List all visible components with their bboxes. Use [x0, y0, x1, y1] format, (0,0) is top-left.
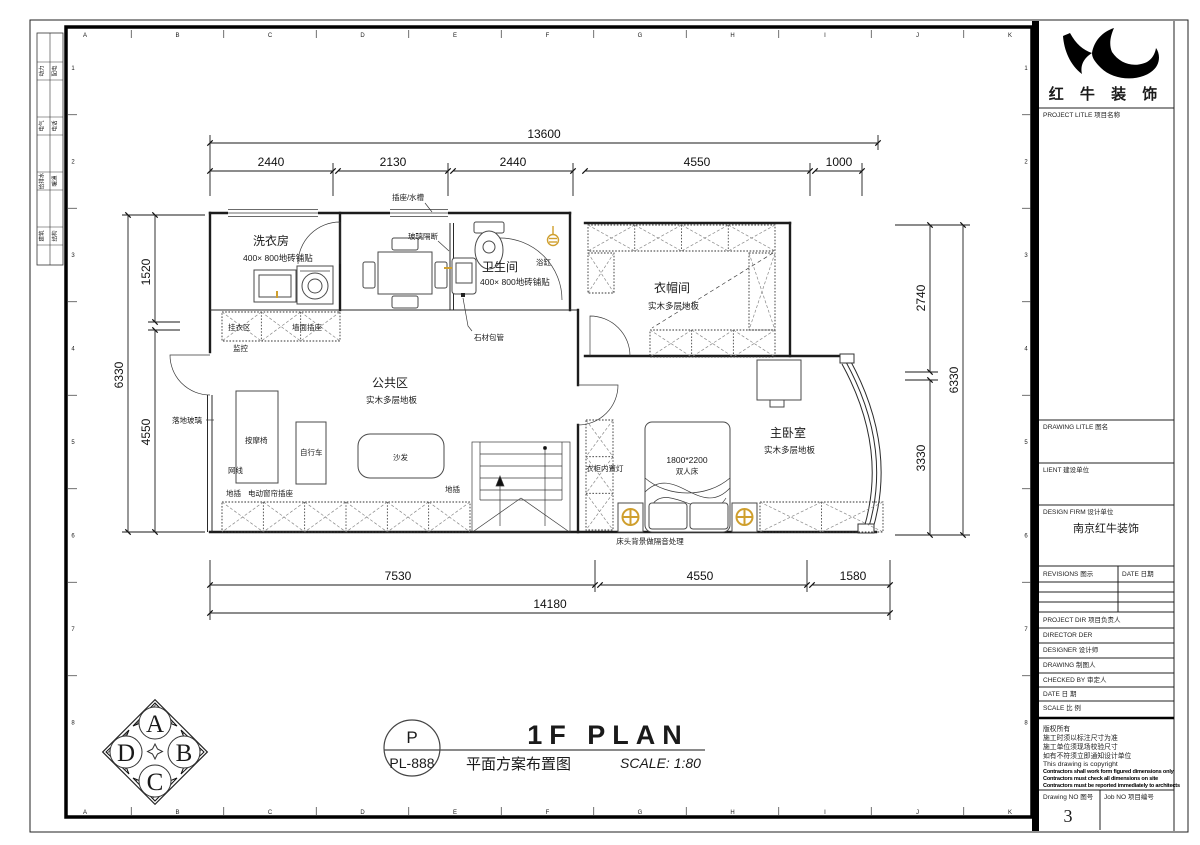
grid-number-left: 6: [71, 534, 75, 540]
grid-letter-bottom: G: [638, 810, 643, 816]
title-strip: P PL-888 1F PLAN 平面方案布置图 SCALE: 1:80: [384, 720, 705, 776]
grid-number-right: 7: [1024, 627, 1028, 633]
director-label: DIRECTOR DER: [1043, 632, 1093, 639]
curtain-socket-label: 电动窗帘插座: [248, 488, 293, 498]
drawing-label: DRAWING LITLE 图名: [1043, 422, 1108, 431]
grid-letter-bottom: F: [546, 810, 550, 816]
grid-letter-top: H: [730, 33, 734, 39]
bed-type-label: 双人床: [676, 466, 699, 476]
window-top-kitchen: [390, 209, 448, 217]
compass: A B C D: [103, 700, 208, 805]
scale-label: SCALE 比 例: [1043, 703, 1081, 712]
grid-number-right: 5: [1024, 440, 1028, 446]
company-name: 红 牛 装 饰: [1049, 85, 1164, 103]
wall-socket-label: 墙面插座: [292, 322, 322, 332]
dim-top-5: 1000: [826, 155, 853, 169]
dim-right-1: 2740: [914, 284, 928, 311]
floor-glass-label: 落地玻璃: [172, 415, 202, 425]
strip-label: 配电: [51, 65, 59, 77]
chair: [435, 262, 447, 288]
plan-title-en: 1F PLAN: [527, 720, 689, 750]
grid-number-left: 3: [71, 253, 75, 259]
grid-letter-top: F: [546, 33, 550, 39]
titleblock-separator-bar: [1032, 21, 1039, 831]
grid-letter-bottom: D: [360, 810, 365, 816]
grid-letter-bottom: I: [824, 810, 826, 816]
bed-size-label: 1800*2200: [666, 455, 707, 465]
dim-left-total: 6330: [112, 361, 126, 388]
grid-letter-top: A: [83, 33, 87, 39]
chair: [363, 262, 375, 288]
firm-label: DESIGN FIRM 设计单位: [1043, 507, 1114, 516]
plan-bubble-letter: P: [406, 728, 417, 747]
stone-pipe-label: 石材包管: [474, 332, 504, 342]
compass-a: A: [146, 711, 164, 738]
dim-bottom-total: 14180: [533, 597, 567, 611]
strip-label: 电气: [38, 120, 46, 132]
project-label: PROJECT LITLE 项目名称: [1043, 110, 1121, 119]
pillow: [690, 503, 728, 529]
project-dir-label: PROJECT DIR 项目负责人: [1043, 615, 1121, 624]
glass-partition-label: 玻璃隔断: [408, 231, 438, 241]
entry-door: [170, 355, 210, 395]
room-bathroom-floor: 400× 800地砖铺贴: [480, 277, 550, 287]
floor-socket-label: 地插: [226, 488, 241, 498]
bed: [645, 422, 730, 532]
grid-letter-top: G: [638, 33, 643, 39]
dim-bottom-3: 1580: [840, 569, 867, 583]
dim-left-2: 4550: [139, 418, 153, 445]
dim-top-3: 2440: [500, 155, 527, 169]
copyright-notes: 版权所有 施工时须以标注尺寸为准 施工单位须现场校验尺寸 如有不符须立即通知设计…: [1043, 724, 1180, 789]
room-bathroom: 卫生间: [482, 260, 518, 274]
grid-number-right: 6: [1024, 534, 1028, 540]
discipline-strip: 动力配电电气电话给排水暖通建筑结构: [37, 33, 63, 265]
pillow: [649, 503, 687, 529]
grid-letter-bottom: A: [83, 810, 87, 816]
grid-letter-bottom: H: [730, 810, 734, 816]
note-en-3: Contractors must check all dimensions on…: [1043, 776, 1158, 782]
plan-scale: SCALE: 1:80: [620, 755, 701, 771]
grid-letter-bottom: K: [1008, 810, 1012, 816]
grid-letter-bottom: B: [175, 810, 179, 816]
socket-sink-label: 插座/水槽: [392, 192, 425, 202]
title-block: 红 牛 装 饰 PROJECT LITLE 项目名称 DRAWING LITLE…: [1039, 28, 1180, 830]
grid-letter-bottom: E: [453, 810, 457, 816]
dim-top-1: 2440: [258, 155, 285, 169]
grid-number-right: 2: [1024, 160, 1028, 166]
chair: [392, 296, 418, 308]
drawing-no-label: Drawing NO 图号: [1043, 793, 1094, 801]
grid-number-right: 1: [1024, 66, 1028, 72]
room-cloakroom: 衣帽间: [654, 280, 690, 295]
date-label: DATE 日 期: [1043, 690, 1077, 698]
stairs: [472, 442, 570, 532]
shower-head-symbol: [548, 226, 559, 246]
wardrobe-cabinet: [650, 330, 775, 357]
headboard-label: 床头背景做隔音处理: [616, 536, 684, 546]
dim-left-1: 1520: [139, 258, 153, 285]
grid-number-right: 3: [1024, 253, 1028, 259]
grid-number-left: 2: [71, 160, 75, 166]
dim-bottom-1: 7530: [385, 569, 412, 583]
strip-label: 给排水: [38, 172, 46, 189]
grid-number-left: 4: [71, 347, 75, 353]
wardrobe-light-label: 衣柜内置灯: [586, 463, 624, 473]
bedside-light-symbol: [623, 509, 639, 525]
revisions-date-label: DATE 日期: [1122, 570, 1154, 578]
note-cn-4: 如有不符须立即通知设计单位: [1043, 751, 1132, 760]
monitor-label: 监控: [233, 343, 248, 353]
room-cloakroom-floor: 实木多层地板: [648, 301, 700, 311]
drawing-sheet: 动力配电电气电话给排水暖通建筑结构 AABBCCDDEEFFGGHHIIJJKK…: [0, 0, 1200, 845]
dim-right-2: 3330: [914, 444, 928, 471]
grid-number-right: 8: [1024, 721, 1028, 727]
grid-letter-top: E: [453, 33, 457, 39]
drawing-no-value: 3: [1064, 806, 1073, 826]
dim-top-4: 4550: [684, 155, 711, 169]
grid-letter-top: C: [268, 33, 273, 39]
job-no-label: Job NO 项目编号: [1104, 792, 1154, 801]
compass-b: B: [176, 740, 193, 767]
room-bedroom: 主卧室: [770, 425, 806, 440]
bicycle-label: 自行车: [300, 447, 323, 457]
client-label: LIENT 建设单位: [1043, 465, 1090, 474]
note-cn-2: 施工时须以标注尺寸为准: [1043, 733, 1118, 742]
room-laundry-floor: 400× 800地砖铺贴: [243, 253, 313, 263]
sofa-label: 沙发: [393, 452, 408, 462]
plan-bubble-code: PL-888: [389, 755, 434, 771]
note-cn-3: 施工单位须现场校验尺寸: [1043, 742, 1118, 751]
firm-name: 南京红牛装饰: [1073, 521, 1139, 535]
designer-label: DESIGNER 设计师: [1043, 645, 1099, 654]
grid-number-left: 8: [71, 721, 75, 727]
room-public-floor: 实木多层地板: [366, 395, 418, 405]
strip-label: 建筑: [38, 230, 46, 242]
note-cn-1: 版权所有: [1043, 724, 1070, 733]
grid-letter-top: D: [360, 33, 365, 39]
dining-table: [378, 252, 432, 294]
stone-pipe-dot: [461, 293, 465, 297]
note-en-2: Contractors shall work form figured dime…: [1043, 769, 1175, 775]
cloakroom-door: [590, 316, 630, 356]
strip-label: 暖通: [51, 175, 59, 187]
dim-top-total: 13600: [527, 127, 561, 141]
network-label: 网线: [228, 465, 243, 475]
revisions-label: REVISIONS 图示: [1043, 570, 1094, 578]
grid-letter-top: J: [916, 33, 919, 39]
bedside-light-symbol: [737, 509, 753, 525]
dim-right-total: 6330: [947, 366, 961, 393]
compass-c: C: [147, 769, 164, 796]
grid-number-left: 1: [71, 66, 75, 72]
furniture: [236, 222, 801, 532]
strip-label: 电话: [51, 120, 59, 132]
grid-letter-top: K: [1008, 33, 1012, 39]
floor-socket2-label: 地插: [445, 484, 460, 494]
note-en-4: Contractors must be reported immediately…: [1043, 783, 1180, 789]
strip-label: 结构: [51, 230, 59, 242]
note-en-1: This drawing is copyright: [1043, 761, 1118, 768]
bedroom-door: [578, 385, 618, 425]
grid-letter-bottom: C: [268, 810, 273, 816]
checked-label: CHECKED BY 审定人: [1043, 675, 1107, 684]
massage-chair-label: 按摩椅: [245, 435, 268, 445]
hang-area-label: 挂衣区: [228, 322, 251, 332]
plan-title-cn: 平面方案布置图: [466, 755, 571, 773]
dim-top-2: 2130: [380, 155, 407, 169]
compass-d: D: [117, 740, 135, 767]
grid-number-right: 4: [1024, 347, 1028, 353]
dimensions: 13600 2440 2130 2440 4550 1000 7530 4550: [112, 127, 970, 620]
room-public: 公共区: [372, 376, 408, 390]
company-logo: [1063, 28, 1159, 78]
grid-letter-top: I: [824, 33, 826, 39]
window-top-laundry: [228, 209, 318, 217]
grid-number-left: 7: [71, 627, 75, 633]
room-bedroom-floor: 实木多层地板: [764, 445, 816, 455]
dim-bottom-2: 4550: [687, 569, 714, 583]
strip-label: 动力: [38, 65, 46, 76]
bathtub-label: 浴缸: [536, 257, 551, 267]
dresser: [757, 360, 801, 400]
grid-letter-top: B: [175, 33, 179, 39]
grid-letter-bottom: J: [916, 810, 919, 816]
drawing-by-label: DRAWING 制图人: [1043, 660, 1096, 669]
grid-number-left: 5: [71, 440, 75, 446]
room-laundry: 洗衣房: [253, 233, 289, 248]
